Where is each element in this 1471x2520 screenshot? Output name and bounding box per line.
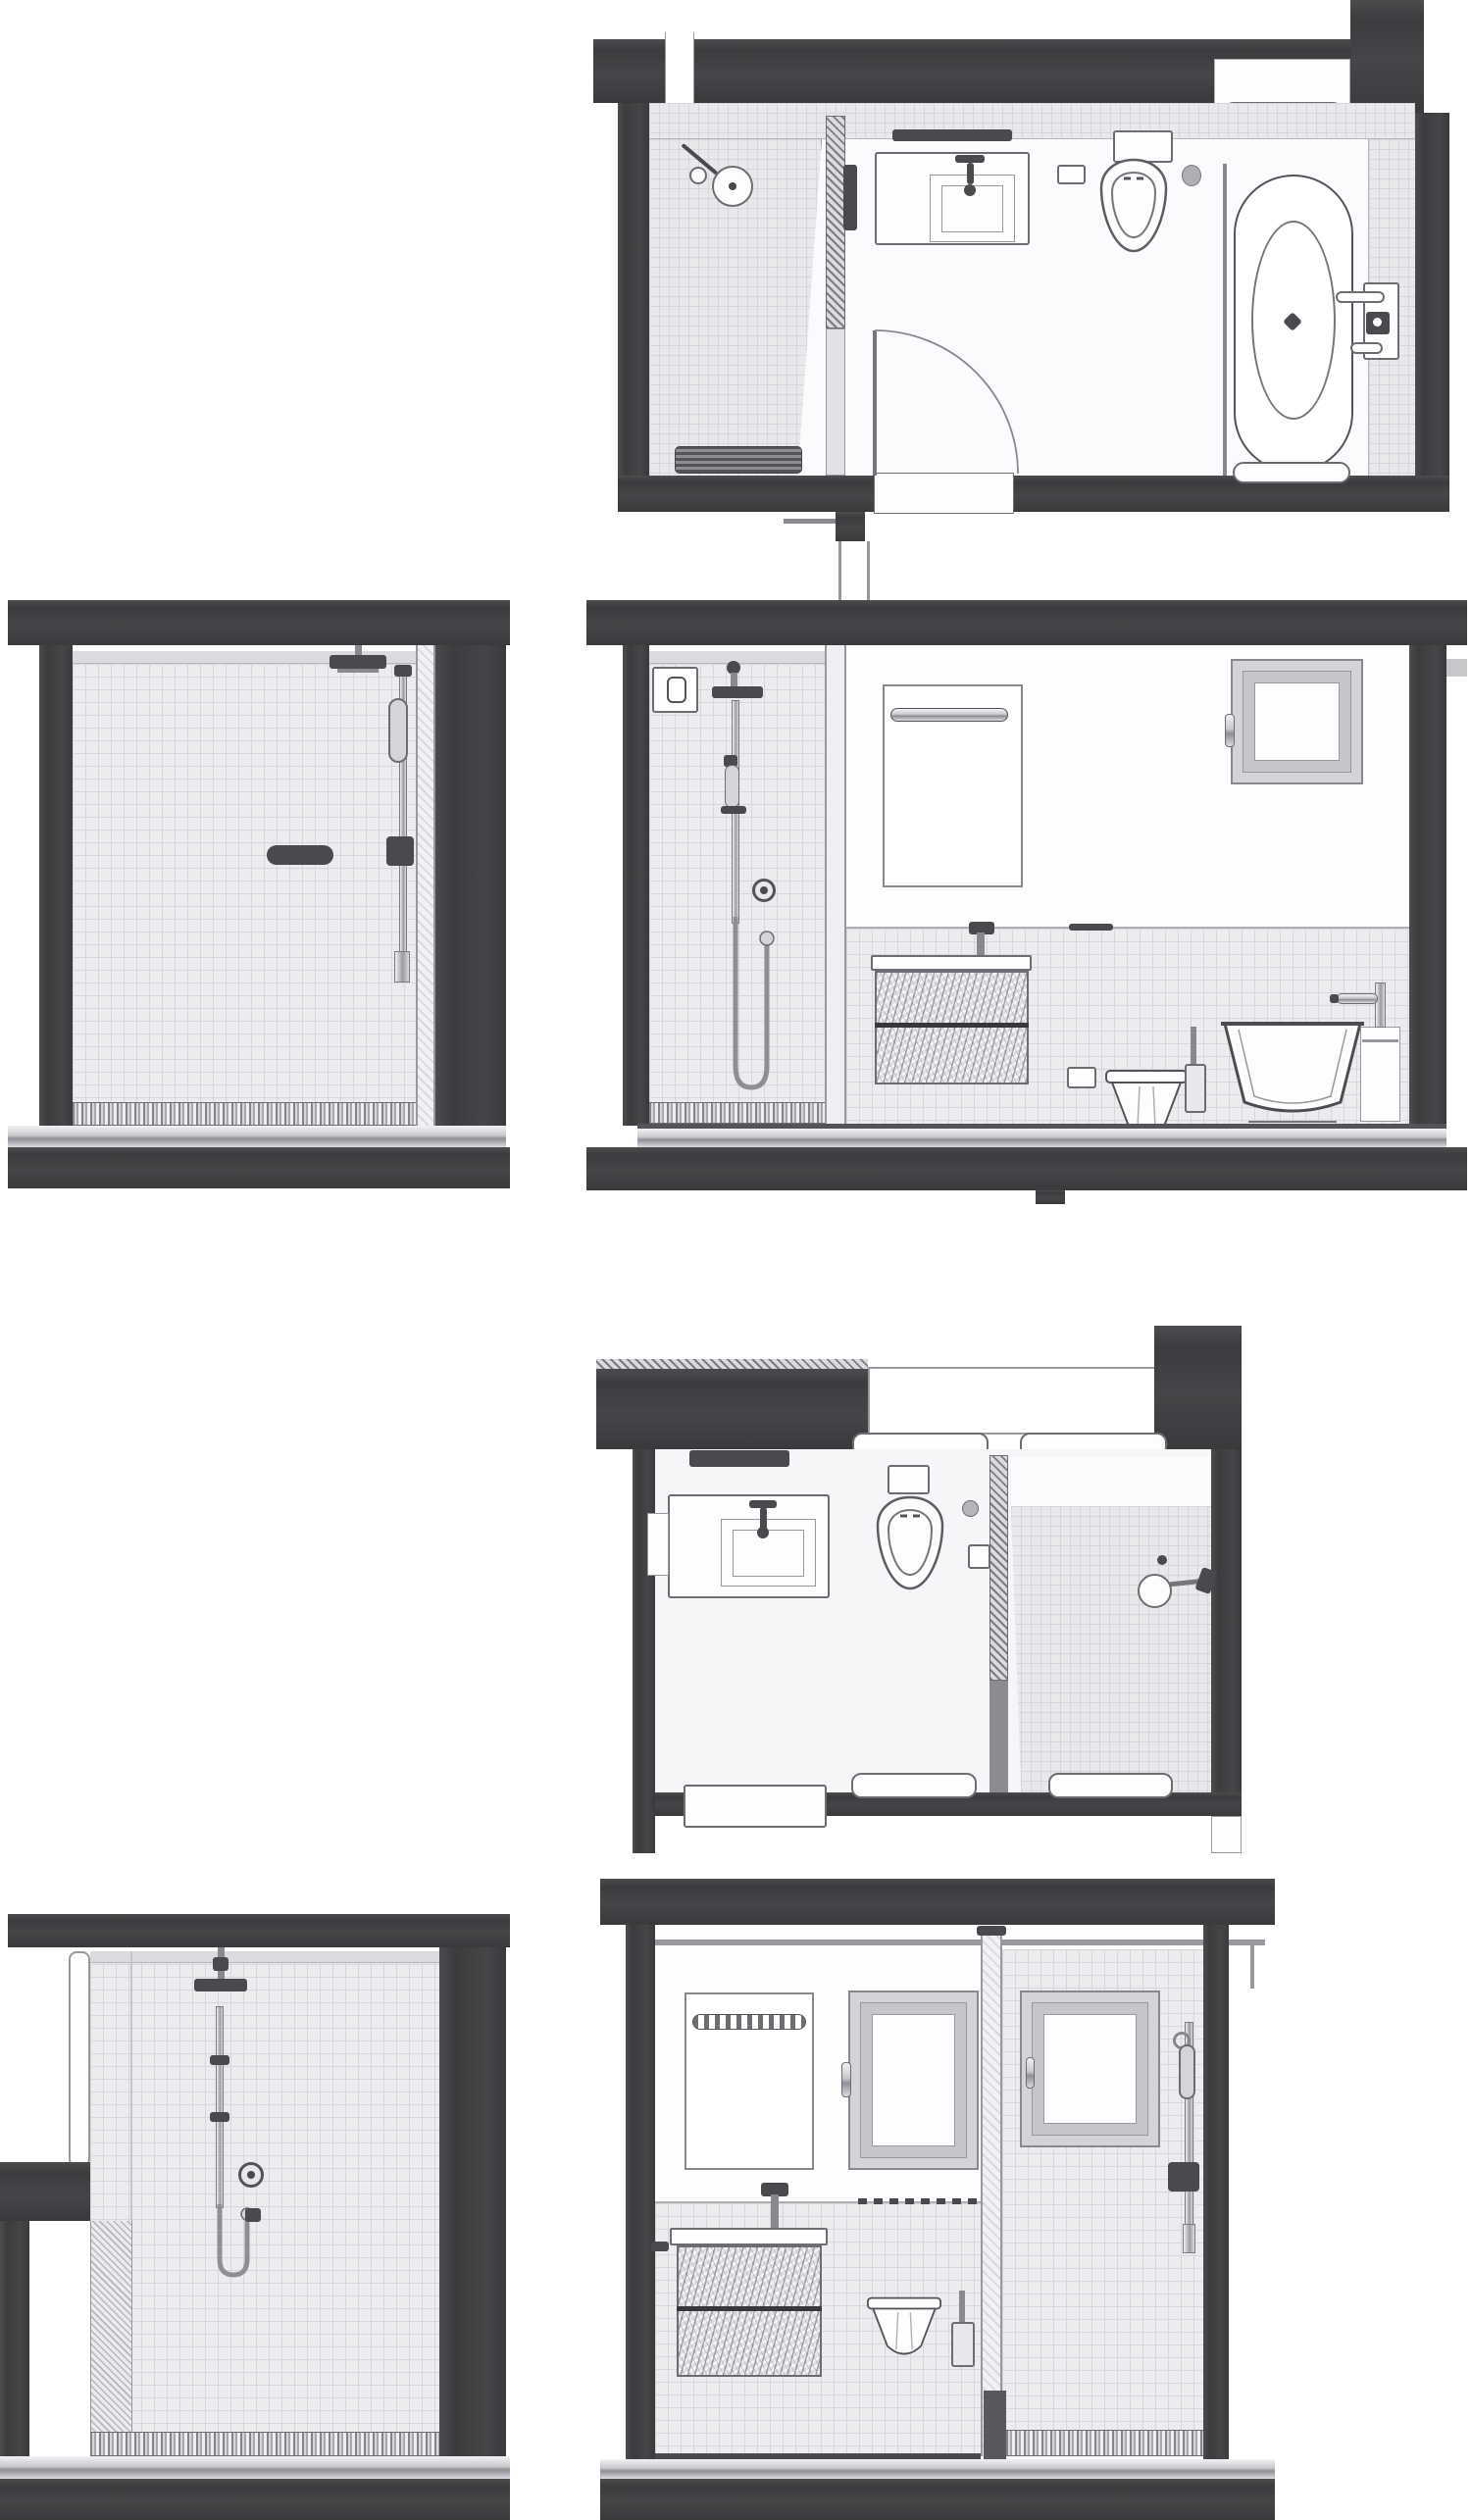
plan1-shower-mat bbox=[675, 446, 802, 474]
drawing-canvas bbox=[0, 0, 1471, 2520]
elev2-tub-faucet-pipe bbox=[1375, 983, 1386, 1028]
plan2-sink-drain bbox=[757, 1527, 769, 1538]
elev2-tub-spout bbox=[1337, 993, 1378, 1004]
plan1-hand-shower-dot bbox=[689, 167, 707, 184]
elev4-window-1 bbox=[848, 1991, 979, 2170]
elev2-threshold-notch bbox=[1036, 1190, 1065, 1204]
elev4-drawer-divider bbox=[677, 2306, 822, 2311]
plan1-glass-partition bbox=[826, 116, 845, 328]
elev4-floor-strip bbox=[600, 2459, 1275, 2479]
elev2-window-glass bbox=[1254, 682, 1340, 761]
elevation-bathroom-2 bbox=[0, 1879, 1471, 2520]
plan2-toilet-cistern bbox=[888, 1465, 930, 1494]
elev4-wainscot-dashes bbox=[858, 2198, 981, 2204]
elev2-right-step bbox=[1446, 659, 1467, 677]
elev4-column-left bbox=[626, 1925, 655, 2479]
plan2-wall-box bbox=[968, 1544, 990, 1569]
elev4-glass-partition bbox=[981, 1930, 1002, 2456]
elev4-window-1-handle bbox=[841, 2062, 851, 2097]
elev4-partition-bracket bbox=[977, 1926, 1006, 1936]
elev4-vanity-counter bbox=[670, 2228, 828, 2245]
plan1-sink-faucet-bar bbox=[955, 155, 985, 163]
elev4-beam-bottom bbox=[600, 2479, 1275, 2520]
elev4-mirror-light-bar bbox=[692, 2014, 806, 2030]
elev4-shower-floor bbox=[1006, 2430, 1203, 2456]
plan1-wall-corner-block bbox=[1350, 0, 1424, 113]
elev2-drawer-divider bbox=[875, 1023, 1029, 1028]
elev4-beam-top bbox=[600, 1879, 1275, 1925]
elev2-window-handle bbox=[1225, 714, 1235, 747]
elev4-toilet-brush-handle bbox=[959, 2291, 965, 2326]
plan2-vanity-backsplash bbox=[689, 1450, 789, 1467]
elev4-window-2 bbox=[1020, 1991, 1160, 2147]
floor-plan-bottom bbox=[0, 1304, 1471, 1912]
plan1-sink-drain bbox=[964, 184, 976, 196]
plan2-wall-right bbox=[1211, 1449, 1242, 1816]
plan2-glass-partition bbox=[989, 1455, 1008, 1681]
elev2-column-left bbox=[623, 645, 649, 1126]
plan2-flush-button bbox=[962, 1500, 979, 1517]
plan2-wall-bottom-left bbox=[655, 1792, 684, 1816]
plan1-pipe-shaft bbox=[665, 32, 694, 105]
plan1-door-swing-arc bbox=[861, 317, 1028, 483]
elev2-beam-bottom bbox=[586, 1147, 1467, 1190]
elev4-toilet bbox=[864, 2294, 944, 2369]
plan2-partition-lower bbox=[989, 1681, 1008, 1792]
plan1-toilet-bowl bbox=[1096, 157, 1171, 255]
elev2-wainscot-ledge bbox=[1069, 924, 1113, 931]
elev2-glass-edge bbox=[825, 645, 846, 1126]
plan1-tub-spout bbox=[1336, 291, 1385, 303]
plan1-supply-pipe-1 bbox=[838, 541, 841, 600]
elev4-basin-faucet-stem bbox=[771, 2194, 779, 2230]
plan2-shower-dot bbox=[1157, 1555, 1167, 1565]
plan1-wall-finish-strip bbox=[649, 103, 1415, 139]
elev2-hand-shower-hose bbox=[724, 917, 783, 1103]
elev4-rail-hook-right bbox=[1250, 1945, 1254, 1989]
elev2-column-right bbox=[1409, 645, 1446, 1126]
plan1-alcove-divider bbox=[1223, 164, 1227, 476]
elev2-bar-bracket bbox=[721, 806, 746, 814]
plan2-entry-mat-2 bbox=[1048, 1773, 1173, 1798]
elevation-bathroom-1 bbox=[0, 600, 1471, 1232]
floor-plan-top bbox=[0, 0, 1471, 600]
plan2-door-threshold bbox=[684, 1785, 827, 1828]
plan1-shower-head-dot bbox=[729, 182, 736, 190]
plan2-sink-inner bbox=[733, 1530, 804, 1577]
elev4-bar-bracket bbox=[1168, 2162, 1199, 2192]
plan2-entry-mat-1 bbox=[851, 1773, 977, 1798]
plan1-partition-hinge bbox=[843, 165, 857, 230]
elev2-window bbox=[1231, 659, 1363, 784]
elev4-column-right bbox=[1203, 1925, 1229, 2479]
elev4-toilet-brush-cup bbox=[951, 2322, 975, 2367]
elev2-vanity-drawers bbox=[875, 971, 1029, 1084]
plan1-sink-faucet-stem bbox=[967, 163, 974, 184]
plan2-shower-entry bbox=[1011, 1457, 1211, 1506]
plan1-supply-pipe-2 bbox=[867, 541, 870, 600]
plan1-wall-left bbox=[618, 103, 649, 512]
elev2-vanity-counter bbox=[871, 955, 1032, 971]
elev2-shower-tray bbox=[649, 1102, 825, 1124]
elev4-door-handle-mark bbox=[651, 2242, 669, 2251]
elev2-toilet-brush-handle bbox=[1191, 1027, 1196, 1066]
plan2-shower-head bbox=[1138, 1574, 1172, 1608]
elev2-rain-head bbox=[712, 686, 763, 698]
plan1-glass-partition-lower bbox=[826, 328, 845, 476]
elev2-floor-strip bbox=[637, 1129, 1446, 1147]
elev4-hand-shower bbox=[1179, 2044, 1195, 2099]
elev4-bar-foot bbox=[1183, 2224, 1195, 2253]
elev2-flush-plate bbox=[1067, 1067, 1096, 1088]
plan2-shower-tiles bbox=[1011, 1506, 1211, 1792]
elev4-shower-curb bbox=[984, 2391, 1006, 2459]
plan1-flush-plate bbox=[1057, 165, 1086, 184]
elev2-tub-spout-tip bbox=[1330, 994, 1339, 1003]
plan2-left-wall-niche bbox=[647, 1513, 669, 1576]
elev2-toilet-brush-cup bbox=[1185, 1064, 1206, 1113]
plan2-wall-right-stub bbox=[1211, 1816, 1242, 1853]
elev4-window-2-glass bbox=[1043, 2014, 1137, 2124]
elev4-vanity-drawers bbox=[677, 2245, 822, 2377]
plan2-window-bay bbox=[868, 1367, 1157, 1435]
plan1-floor-drain bbox=[1182, 165, 1201, 186]
elev2-control-niche-inner bbox=[667, 677, 686, 703]
elev2-tub-platform-line bbox=[1362, 1039, 1398, 1042]
plan1-tub-mixer-dot bbox=[1373, 318, 1382, 327]
elev4-window-2-handle bbox=[1026, 2057, 1035, 2089]
elev2-beam-top bbox=[586, 600, 1467, 645]
plan2-toilet-bowl bbox=[873, 1494, 947, 1592]
plan1-tub-mat bbox=[1233, 462, 1350, 483]
elev2-mirror-towel-bar bbox=[890, 708, 1008, 722]
plan1-tub-handle bbox=[1350, 342, 1383, 354]
plan1-wall-right bbox=[1415, 113, 1449, 512]
plan1-pipe-tick bbox=[784, 519, 836, 524]
plan2-wall-top bbox=[596, 1369, 868, 1449]
elev4-picture-rail bbox=[626, 1940, 1265, 1945]
elev2-mixer-dot bbox=[760, 886, 768, 894]
elev4-window-1-glass bbox=[872, 2014, 955, 2146]
elev2-bathtub bbox=[1219, 1016, 1366, 1126]
plan2-wall-left bbox=[633, 1449, 655, 1853]
plan1-wall-stub bbox=[836, 512, 865, 541]
elev2-hand-shower bbox=[725, 765, 739, 808]
plan2-wall-corner-block bbox=[1154, 1326, 1242, 1449]
plan1-vanity-backsplash bbox=[892, 129, 1012, 141]
